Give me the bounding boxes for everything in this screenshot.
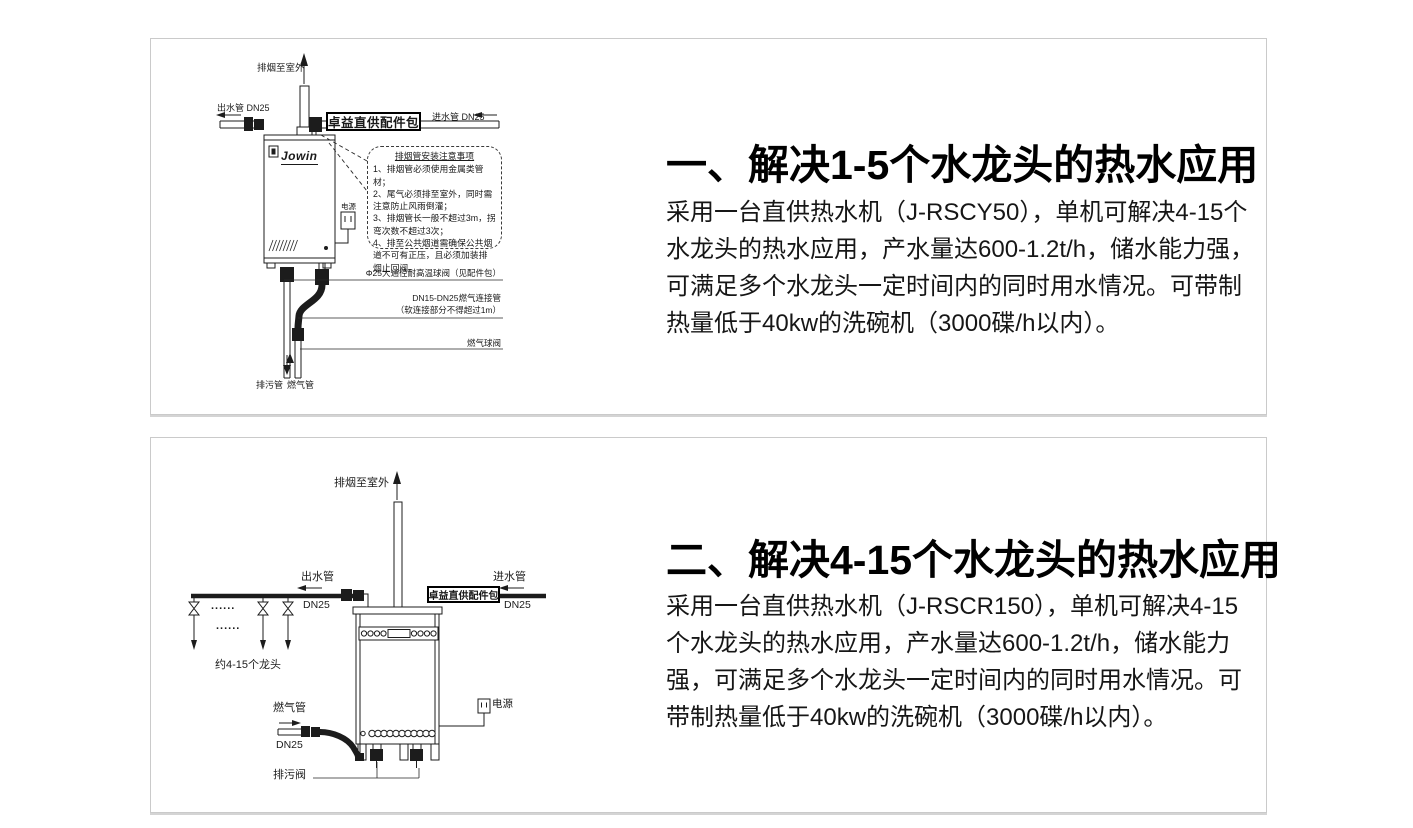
outlet-flow-arrow-icon xyxy=(297,585,306,591)
power-plug-icon xyxy=(335,212,355,243)
flue-label: 排烟至室外 xyxy=(334,477,389,490)
gas-flow-arrow-icon xyxy=(292,720,301,726)
power-label: 电源 xyxy=(341,203,356,212)
outlet-pipe xyxy=(216,112,264,131)
supply-kit-box: 卓益直供配件包 xyxy=(326,112,421,131)
gas-hose-callout-1: DN15-DN25燃气连接管 xyxy=(351,292,501,304)
section-1-body: 采用一台直供热水机（J-RSCY50），单机可解决4-15个水龙头的热水应用，产… xyxy=(666,194,1258,342)
inlet-pipe-label: 进水管 xyxy=(493,571,526,584)
supply-kit-box: 卓益直供配件包 xyxy=(427,586,500,603)
install-diagram-1: 排烟至室外 出水管 DN25 卓益直供配件包 进水管 DN25 Jowin 电源… xyxy=(151,39,666,414)
inlet-pipe-label: 进水管 DN25 xyxy=(432,112,485,122)
tap-valves xyxy=(189,598,293,650)
power-plug-icon xyxy=(439,699,490,726)
gas-valve-callout: 燃气球阀 xyxy=(351,337,501,349)
outlet-pipe-label: 出水管 DN25 xyxy=(217,103,270,113)
gas-hose-callout-2: （软连接部分不得超过1m） xyxy=(351,304,501,316)
section-1-5-taps: 排烟至室外 出水管 DN25 卓益直供配件包 进水管 DN25 Jowin 电源… xyxy=(150,38,1267,415)
flue-notes-box: 排烟管安装注意事项 1、排烟管必须使用金属类管材； 2、尾气必须排至室外，同时需… xyxy=(367,146,502,249)
page: 排烟至室外 出水管 DN25 卓益直供配件包 进水管 DN25 Jowin 电源… xyxy=(0,0,1413,828)
power-label: 电源 xyxy=(492,698,513,710)
flue-pipe xyxy=(393,471,402,607)
flue-note-2: 2、尾气必须排至室外，同时需注意防止风雨倒灌； xyxy=(373,188,496,213)
section-4-15-taps: 排烟至室外 出水管 DN25 卓益直供配件包 进水管 DN25 ...... .… xyxy=(150,437,1267,813)
ball-valve-callout: Φ25大通径耐高温球阀（见配件包） xyxy=(351,267,501,279)
section-1-heading: 一、解决1-5个水龙头的热水应用 xyxy=(666,131,1258,191)
drain-valve-label: 排污阀 xyxy=(273,769,306,782)
install-diagram-2: 排烟至室外 出水管 DN25 卓益直供配件包 进水管 DN25 ...... .… xyxy=(151,438,666,813)
flue-note-3: 3、排烟管长一般不超过3m，拐弯次数不超过3次； xyxy=(373,212,496,237)
heater-unit xyxy=(353,607,442,760)
drain-pipe-label: 排污管 xyxy=(256,380,283,390)
brand-logo: Jowin xyxy=(281,149,318,165)
inlet-flow-arrow-icon xyxy=(499,585,508,591)
outlet-dn-label: DN25 xyxy=(303,599,330,611)
flue-note-1: 1、排烟管必须使用金属类管材； xyxy=(373,163,496,188)
inlet-pipe xyxy=(499,585,546,596)
section-2-body: 采用一台直供热水机（J-RSCR150），单机可解决4-15个水龙头的热水应用，… xyxy=(666,588,1258,736)
taps-ellipsis-1: ...... xyxy=(211,600,235,612)
outlet-pipe-label: 出水管 xyxy=(301,571,334,584)
section-2-heading: 二、解决4-15个水龙头的热水应用 xyxy=(666,526,1281,586)
gas-pipe-label: 燃气管 xyxy=(273,702,306,715)
inlet-dn-label: DN25 xyxy=(504,599,531,611)
taps-ellipsis-2: ...... xyxy=(216,620,240,632)
gas-dn-label: DN25 xyxy=(276,739,303,751)
flue-label: 排烟至室外 xyxy=(257,64,305,75)
flue-notes-title: 排烟管安装注意事项 xyxy=(373,150,496,162)
taps-count-label: 约4-15个龙头 xyxy=(215,659,281,672)
gas-pipe-label: 燃气管 xyxy=(287,380,314,390)
